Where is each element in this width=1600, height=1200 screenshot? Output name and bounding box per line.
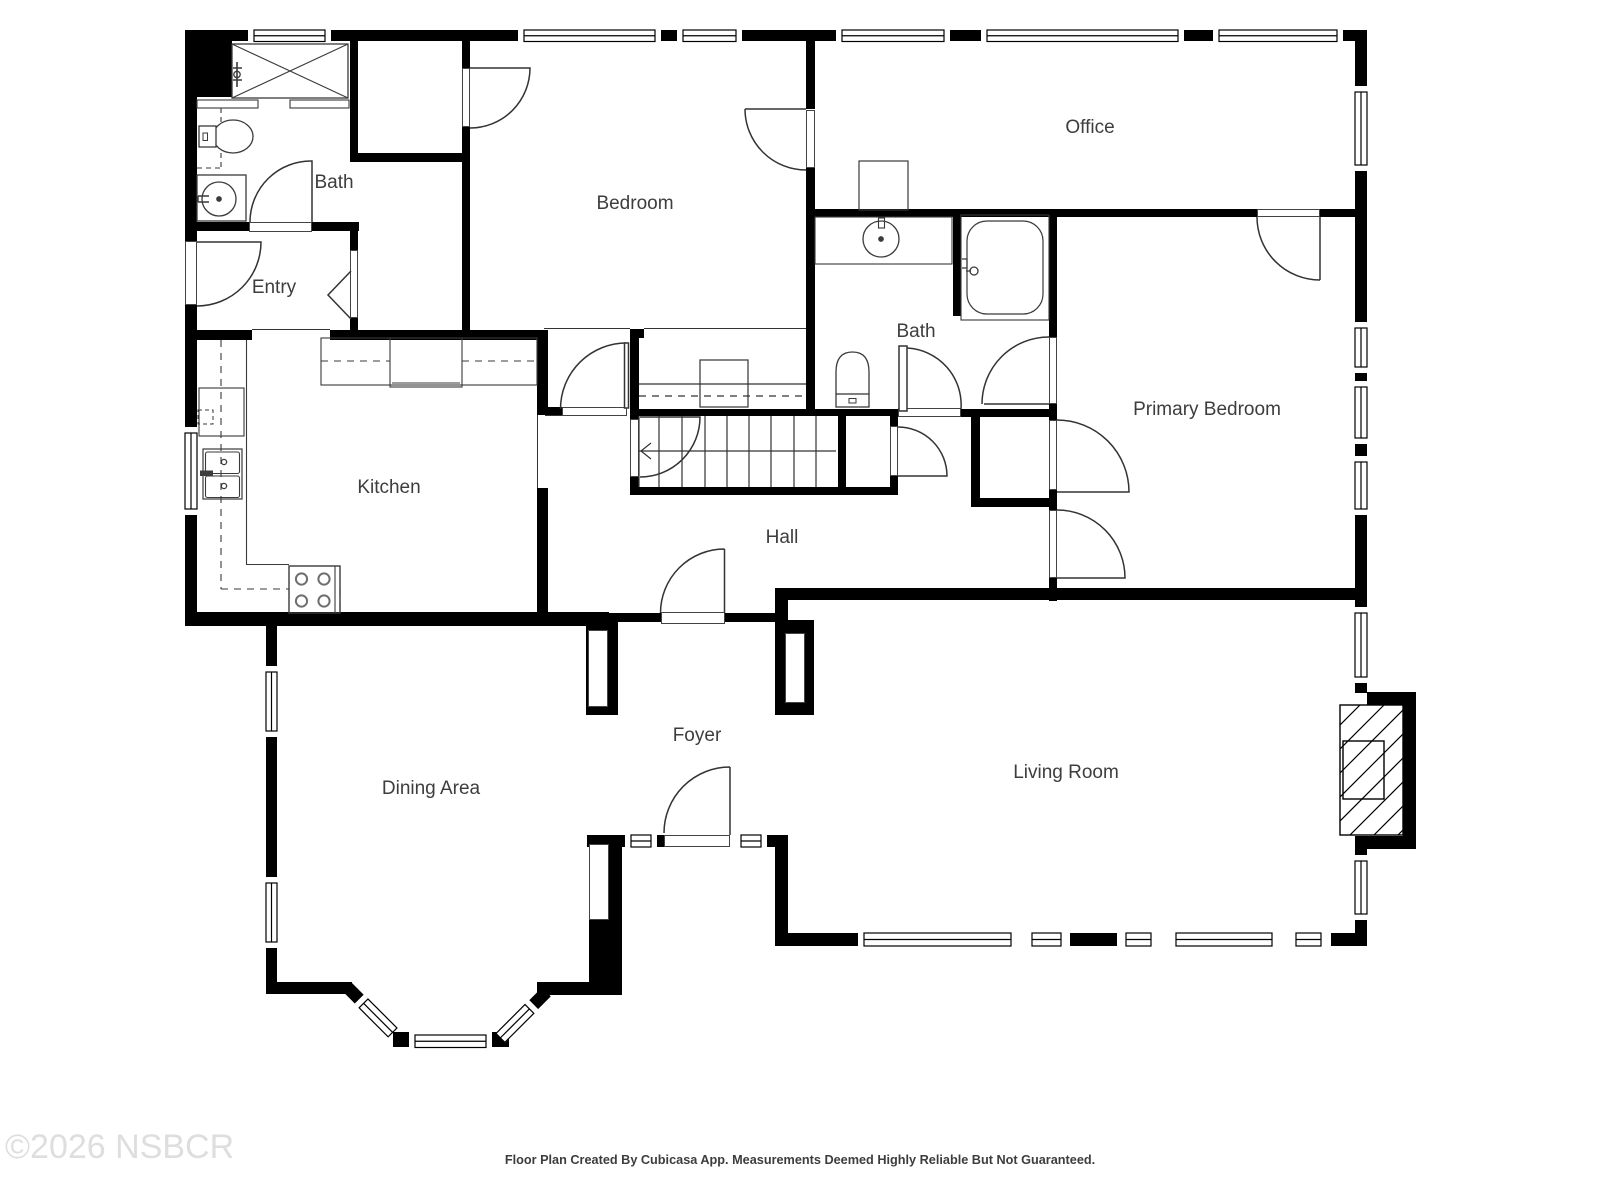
svg-text:Kitchen: Kitchen (357, 477, 420, 498)
svg-text:Bath: Bath (314, 172, 353, 193)
svg-text:Office: Office (1065, 117, 1114, 138)
svg-text:Entry: Entry (252, 277, 297, 298)
svg-text:Primary Bedroom: Primary Bedroom (1133, 399, 1281, 420)
svg-text:Foyer: Foyer (673, 725, 722, 746)
svg-text:©2026 NSBCR: ©2026 NSBCR (5, 1128, 234, 1166)
svg-text:Dining Area: Dining Area (382, 778, 481, 799)
svg-text:Living Room: Living Room (1013, 762, 1119, 783)
svg-text:Hall: Hall (766, 527, 799, 548)
svg-text:Bedroom: Bedroom (596, 193, 673, 214)
svg-text:Floor Plan Created By Cubicasa: Floor Plan Created By Cubicasa App. Meas… (505, 1153, 1095, 1167)
svg-text:Bath: Bath (896, 321, 935, 342)
